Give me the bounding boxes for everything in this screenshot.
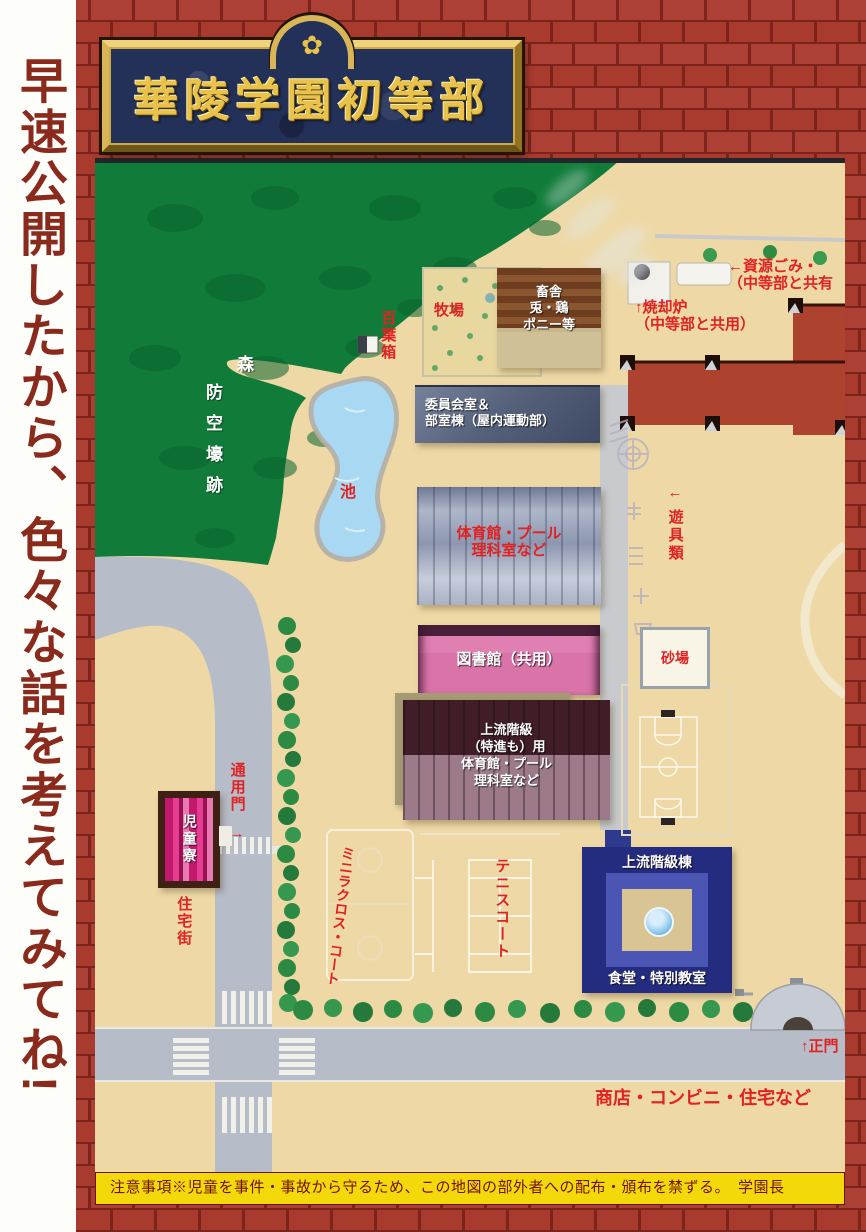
pasture-label: 牧場 xyxy=(434,302,464,319)
barn-label-3: ポニー等 xyxy=(497,317,601,333)
left-arrow-icon: ← xyxy=(662,484,688,501)
upper-gym-label-1: 上流階級 xyxy=(403,722,610,739)
upper-gym-label-4: 理科室など xyxy=(403,773,610,790)
shops-label: 商店・コンビニ・住宅など xyxy=(595,1088,811,1109)
dormitory-label: 児童寮 xyxy=(180,814,198,865)
side-gate-label: 通用門 → xyxy=(225,754,249,843)
upper-class-hall-building: 上流階級棟 食堂・特別教室 xyxy=(582,847,732,993)
committee-building: 委員会室＆ 部室棟（屋内運動部） xyxy=(415,385,600,443)
sandbox-area: 砂場 xyxy=(640,627,710,689)
campus-map: 畜舎 兎・鶏 ポニー等 委員会室＆ 部室棟（屋内運動部） 体育館・プール 理科室… xyxy=(95,158,845,1172)
right-arrow-icon: → xyxy=(225,825,249,842)
barn-label-1: 畜舎 xyxy=(497,284,601,300)
upper-gym-label-2: （特進も）用 xyxy=(403,739,610,756)
fountain-icon xyxy=(644,907,674,937)
side-caption-text: 早速公開したから、色々な話を考えてみてね! xyxy=(14,0,62,1232)
pond-label: 池 xyxy=(340,484,356,502)
sandbox-label: 砂場 xyxy=(661,650,689,666)
upper-gym-label-3: 体育館・プール xyxy=(403,756,610,773)
residential-label: 住宅街 xyxy=(175,896,192,960)
committee-label-1: 委員会室＆ xyxy=(425,397,600,413)
weather-box-icon xyxy=(358,336,378,353)
air-raid-shelter-label: 防空壕跡 xyxy=(200,383,225,593)
incinerator-label: ↑焼却炉 （中等部と共用） xyxy=(635,299,755,334)
school-crest-icon: ✿ xyxy=(270,15,354,69)
barn-building: 畜舎 兎・鶏 ポニー等 xyxy=(497,268,601,368)
side-caption-strip: 早速公開したから、色々な話を考えてみてね! xyxy=(0,0,76,1232)
main-gate-label: ↑正門 xyxy=(801,1038,839,1055)
upper-hall-sub-label: 食堂・特別教室 xyxy=(582,970,732,988)
recycling-container-icon xyxy=(677,263,731,285)
school-sign-title: 華陵学園初等部 xyxy=(133,64,490,129)
notice-bar: 注意事項※児童を事件・事故から守るため、この地図の部外者への配布・頒布を禁ずる。… xyxy=(95,1172,845,1205)
upper-class-gym-building: 上流階級 （特進も）用 体育館・プール 理科室など xyxy=(403,700,610,820)
weather-box-label: 百葉箱 xyxy=(379,310,396,420)
map-top-edge xyxy=(95,158,845,163)
tennis-court-label: テニスコート xyxy=(493,858,510,988)
library-label: 図書館（共用） xyxy=(418,625,600,670)
playground-label: ← 遊具類 xyxy=(662,484,688,577)
upper-hall-label: 上流階級棟 xyxy=(582,854,732,872)
recycling-label: ←資源ごみ・ （中等部と共有 xyxy=(728,258,833,293)
forest-label: 森 xyxy=(237,350,254,375)
library-building: 図書館（共用） xyxy=(418,625,600,695)
common-gym-building: 体育館・プール 理科室など xyxy=(417,487,601,605)
manga-page: { "side_caption": "早速公開したから、色々な話を考えてみてね!… xyxy=(0,0,866,1232)
gym-label-1: 体育館・プール xyxy=(417,525,601,542)
barn-label-2: 兎・鶏 xyxy=(497,300,601,316)
gym-label-2: 理科室など xyxy=(417,542,601,559)
dormitory-building: 児童寮 xyxy=(158,791,220,888)
committee-label-2: 部室棟（屋内運動部） xyxy=(425,413,600,429)
school-sign: ✿ 華陵学園初等部 xyxy=(102,40,522,152)
